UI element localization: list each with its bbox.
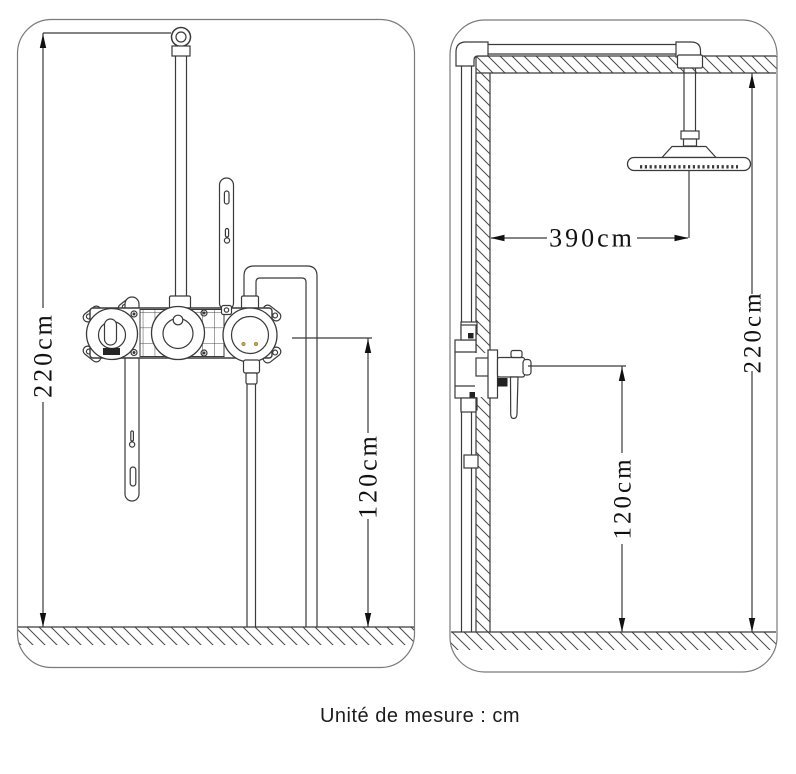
valve-knob-right (223, 308, 277, 362)
ceiling-escutcheon (678, 55, 703, 68)
dimension-label-head-distance: 390cm (549, 224, 635, 253)
valve-knob-left (87, 309, 138, 360)
wall-escutcheon (488, 350, 498, 398)
installation-diagram: 220cm (0, 0, 796, 774)
valve-knob-middle (152, 307, 205, 360)
dimension-label-side-total: 220cm (739, 290, 766, 373)
wall (476, 56, 490, 632)
dimension-label-side-valve: 120cm (609, 456, 636, 539)
front-floor (18, 627, 414, 645)
side-floor (451, 632, 776, 650)
units-caption: Unité de mesure : cm (320, 705, 520, 728)
ceiling-mount-ring (172, 28, 191, 57)
side-panel-border (450, 20, 777, 672)
valve-body (87, 306, 278, 363)
ceiling (476, 56, 777, 73)
mounting-bracket-upper (220, 178, 234, 310)
handle-lever (511, 377, 519, 419)
dimension-label-front-outlet: 120cm (354, 433, 383, 519)
front-view-panel: 220cm (18, 20, 415, 668)
shower-installation-drawing: 220cm (0, 0, 796, 774)
dimension-label-front-total: 220cm (29, 312, 58, 398)
side-view-panel: 390cm 120cm (450, 20, 777, 672)
handle-body (498, 358, 525, 378)
